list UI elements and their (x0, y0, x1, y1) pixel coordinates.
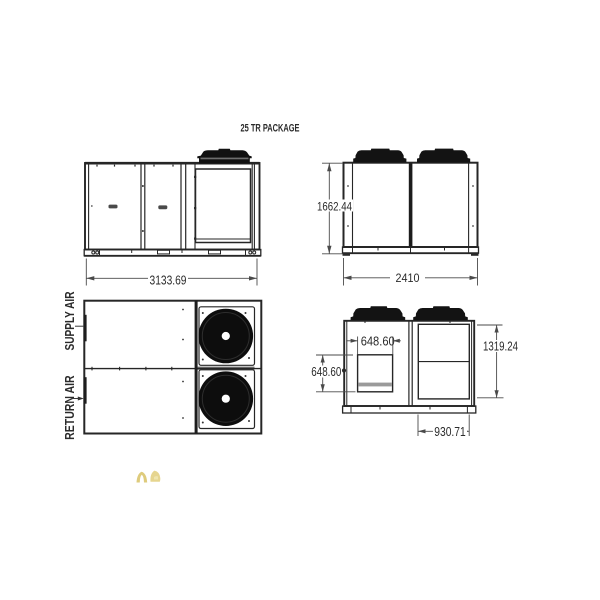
svg-text:RETURN AIR: RETURN AIR (63, 375, 77, 440)
svg-text:1662.44: 1662.44 (317, 199, 352, 213)
svg-text:3133.69: 3133.69 (150, 273, 187, 288)
svg-text:1319.24: 1319.24 (483, 340, 518, 354)
svg-text:2410: 2410 (396, 271, 420, 285)
svg-text:SUPPLY AIR: SUPPLY AIR (63, 292, 77, 351)
svg-text:930.71: 930.71 (434, 425, 466, 439)
svg-text:25 TR PACKAGE: 25 TR PACKAGE (241, 123, 300, 135)
svg-text:648.60: 648.60 (361, 334, 395, 349)
svg-text:648.60: 648.60 (311, 364, 341, 379)
